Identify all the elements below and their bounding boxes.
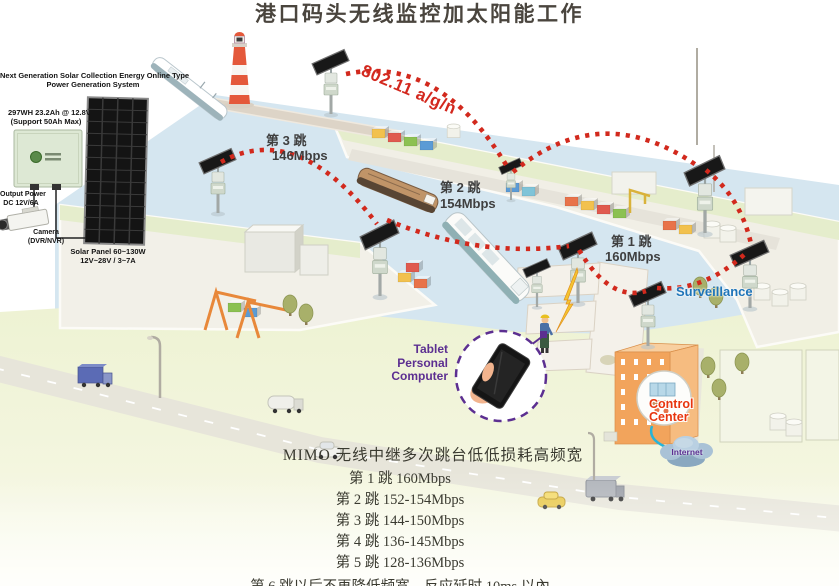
hop1-rate: 160Mbps (605, 249, 661, 264)
solar-panel-label: Solar Panel 60~130W 12V~28V / 3~7A (60, 247, 156, 265)
hop2-rate: 154Mbps (440, 196, 496, 211)
hop1-name: 第 1 跳 (611, 231, 651, 250)
legend-row: 第 3 跳 144-150Mbps (190, 511, 610, 532)
surveillance-label: Surveillance (676, 284, 753, 299)
inset-header-line1: Next Generation Solar Collection Energy … (0, 71, 186, 80)
inset-header: Next Generation Solar Collection Energy … (0, 71, 186, 89)
port-wireless-diagram: 港口码头无线监控加太阳能工作 Next Generation Solar Col… (0, 0, 839, 586)
legend-heading: MIMO 无线中继多次跳台低低损耗高频宽 (256, 443, 610, 465)
internet-label: Internet (663, 447, 711, 457)
page-title: 港口码头无线监控加太阳能工作 (0, 0, 839, 28)
output-power-label: Output Power DC 12V/6A (0, 191, 42, 208)
battery-label: 297WH 23.2Ah @ 12.8V (Support 50Ah Max) (8, 108, 84, 126)
control-center-label: Control Center (649, 398, 693, 424)
battery-box-icon (14, 130, 82, 190)
legend-row: 第 4 跳 136-145Mbps (190, 532, 610, 553)
hop3-name: 第 3 跳 (266, 130, 306, 149)
hop2-name: 第 2 跳 (440, 177, 480, 196)
legend: MIMO 无线中继多次跳台低低损耗高频宽 第 1 跳 160Mbps 第 2 跳… (190, 443, 610, 586)
inset-header-line2: Power Generation System (0, 80, 186, 89)
legend-row: 第 1 跳 160Mbps (190, 469, 610, 490)
legend-footnote: 第 6 跳以后不再降低频宽，反应延时 10ms 以內 (190, 575, 610, 586)
legend-row: 第 5 跳 128-136Mbps (190, 553, 610, 574)
hop3-rate: 146Mbps (272, 148, 328, 163)
wireless-station-icon (312, 50, 349, 118)
solar-panel-icon (84, 97, 148, 245)
tablet-label: Tablet Personal Computer (380, 343, 448, 384)
camera-label: Camera (DVR/NVR) (24, 229, 68, 246)
legend-row: 第 2 跳 152-154Mbps (190, 490, 610, 511)
